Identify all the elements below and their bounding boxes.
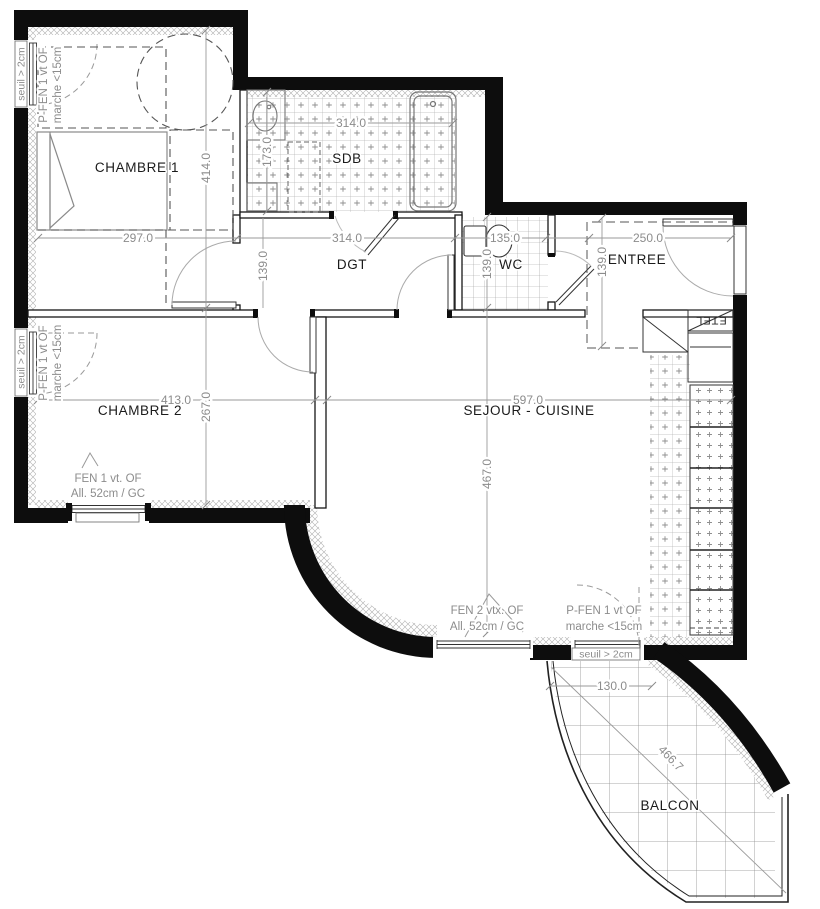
ann-fen-sejour-l1: FEN 2 vtx. OF (451, 605, 524, 617)
dim-wc-h: 139.0 (480, 249, 494, 279)
door-sdb-leaf (364, 215, 399, 255)
door-chambre2-leaf (310, 317, 316, 373)
leader-fen-ch2 (82, 453, 98, 468)
dim-entree-w: 250.0 (633, 231, 663, 245)
door-chambre2-swing (258, 317, 313, 372)
ann-pfen-balcon-l2: marche <15cm (566, 621, 642, 633)
ann-win-ch1-l2: marche <15cm (52, 47, 64, 123)
ann-pfen-balcon-l1: P-FEN 1 vt OF (566, 605, 641, 617)
door-sejour-swing (397, 255, 452, 310)
label-wc: WC (499, 257, 523, 272)
ann-win-ch2-l1: P-FEN 1 vt OF (38, 325, 50, 400)
dim-chambre2-h: 267.0 (199, 392, 213, 422)
dim-sdb-w: 314.0 (336, 116, 366, 130)
door-sejour-leaf (448, 255, 454, 310)
dim-chambre1-w: 297.0 (123, 231, 153, 245)
label-entree: ENTREE (608, 252, 666, 267)
dim-dgt-h: 139.0 (256, 251, 270, 281)
label-chambre1: CHAMBRE 1 (95, 160, 179, 175)
ann-win-ch1-l1: P-FEN 1 vt OF (38, 47, 50, 122)
dim-balcon-w: 130.0 (597, 679, 627, 693)
dim-dgt-w: 314.0 (332, 231, 362, 245)
label-dgt: DGT (337, 257, 367, 272)
door-chambre1-swing (172, 241, 236, 305)
window-sejour-bottom (433, 637, 533, 658)
dim-sdb-h: 173.0 (260, 137, 274, 167)
etel-label: ETEL (695, 314, 727, 326)
floor-plan-svg: ETEL (0, 0, 820, 909)
dim-wc-w: 135.0 (490, 231, 520, 245)
ann-fen-sejour-l2: All. 52cm / GC (450, 621, 524, 633)
dim-sejour-h: 467.0 (480, 459, 494, 489)
ann-win-ch1-sill: seuil > 2cm (16, 47, 28, 101)
ann-win-ch2-sill: seuil > 2cm (16, 335, 28, 389)
door-wc-swing (556, 251, 591, 266)
ann-fen-ch2-l2: All. 52cm / GC (71, 488, 145, 500)
bed (37, 132, 167, 230)
label-sdb: SDB (332, 151, 362, 166)
ann-pfen-balcon-sill: seuil > 2cm (579, 649, 633, 661)
balcony-floor-tiles (550, 661, 775, 898)
window-chambre2-bottom (66, 500, 151, 523)
entry-threshold (734, 226, 746, 294)
label-sejour: SEJOUR - CUISINE (463, 403, 594, 418)
ann-win-ch2-l2: marche <15cm (52, 325, 64, 401)
label-balcon: BALCON (640, 798, 699, 813)
door-wc-leaf (556, 266, 594, 305)
entry-door-swing (663, 226, 733, 296)
kitchen-counter (690, 385, 733, 635)
ann-fen-ch2-l1: FEN 1 vt. OF (74, 473, 141, 485)
label-chambre2: CHAMBRE 2 (98, 403, 182, 418)
dim-chambre1-h: 414.0 (199, 153, 213, 183)
door-chambre1-leaf (172, 302, 236, 308)
kitchen-floor-tiles (650, 355, 690, 637)
floor-plan: ETEL (0, 0, 820, 909)
